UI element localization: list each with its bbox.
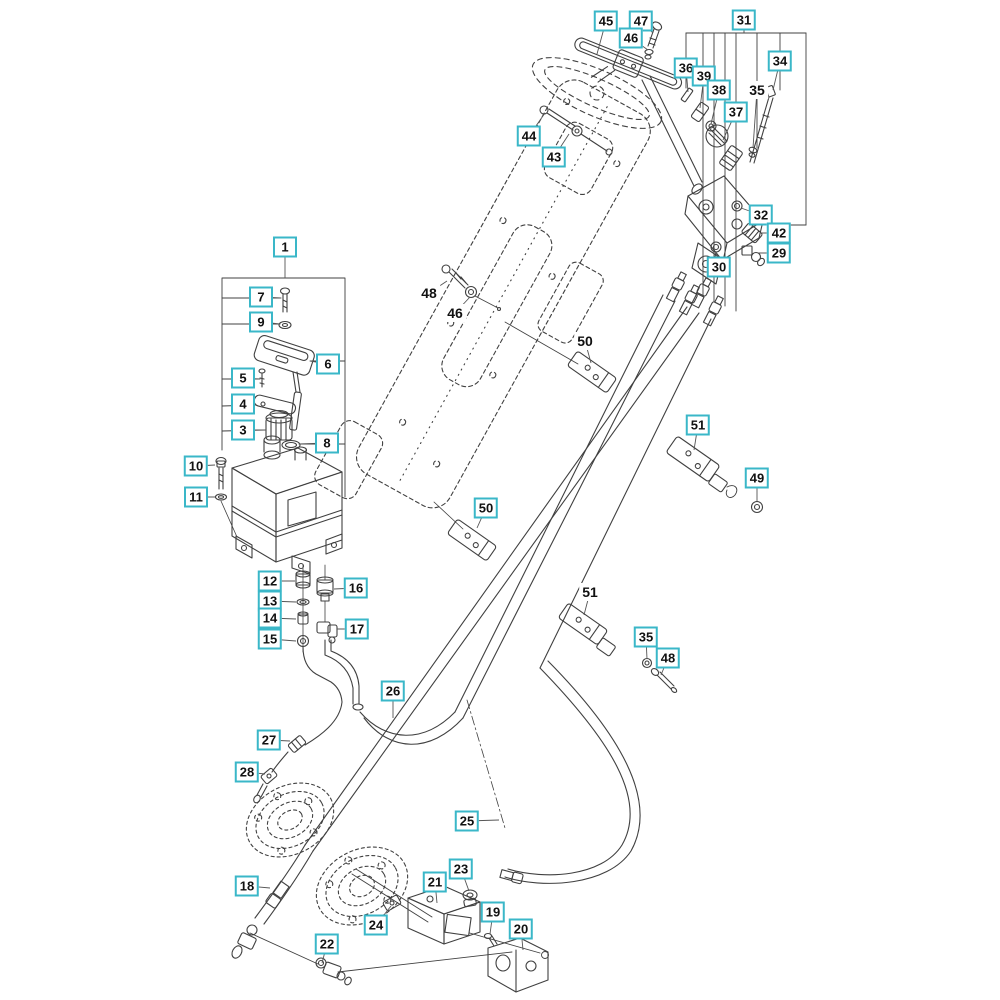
part-callout-11: 11 — [184, 487, 208, 508]
part-callout-44: 44 — [517, 126, 541, 147]
part-callout-26: 26 — [381, 681, 405, 702]
part-callout-25: 25 — [455, 811, 479, 832]
part-callout-5: 5 — [231, 368, 255, 389]
part-callout-49: 49 — [745, 468, 769, 489]
part-callout-45: 45 — [594, 11, 618, 32]
part-callout-42: 42 — [767, 223, 791, 244]
part-callout-6: 6 — [316, 354, 340, 375]
part-callout-12: 12 — [258, 571, 282, 592]
part-callout-4: 4 — [231, 394, 255, 415]
part-callout-16: 16 — [344, 578, 368, 599]
part-callout-18: 18 — [235, 876, 259, 897]
part-callout-50: 50 — [574, 332, 596, 350]
part-callout-37: 37 — [724, 102, 748, 123]
part-callout-3: 3 — [231, 420, 255, 441]
part-callout-30: 30 — [707, 257, 731, 278]
part-callout-50: 50 — [474, 498, 498, 519]
part-callout-10: 10 — [184, 456, 208, 477]
part-callout-43: 43 — [542, 147, 566, 168]
part-callout-29: 29 — [767, 243, 791, 264]
part-callout-21: 21 — [423, 872, 447, 893]
part-callout-1: 1 — [273, 237, 297, 258]
part-callout-35: 35 — [634, 627, 658, 648]
part-callout-46: 46 — [444, 304, 466, 322]
part-callout-19: 19 — [481, 902, 505, 923]
part-callout-24: 24 — [364, 915, 388, 936]
part-callout-28: 28 — [235, 762, 259, 783]
part-callout-48: 48 — [656, 648, 680, 669]
part-callout-35: 35 — [746, 81, 768, 99]
part-callout-27: 27 — [257, 730, 281, 751]
part-callout-51: 51 — [579, 583, 601, 601]
part-callout-14: 14 — [258, 608, 282, 629]
part-callout-31: 31 — [732, 10, 756, 31]
part-callout-15: 15 — [258, 629, 282, 650]
parts-diagram-page: 4547463136393834353744433242293017948466… — [0, 0, 1000, 1000]
part-callout-23: 23 — [449, 859, 473, 880]
part-callout-20: 20 — [509, 919, 533, 940]
part-callout-48: 48 — [418, 284, 440, 302]
part-callout-38: 38 — [707, 80, 731, 101]
callout-layer: 4547463136393834353744433242293017948466… — [0, 0, 1000, 1000]
part-callout-7: 7 — [249, 287, 273, 308]
part-callout-9: 9 — [249, 312, 273, 333]
part-callout-17: 17 — [345, 619, 369, 640]
part-callout-22: 22 — [315, 934, 339, 955]
part-callout-51: 51 — [686, 415, 710, 436]
part-callout-46: 46 — [619, 28, 643, 49]
part-callout-8: 8 — [315, 433, 339, 454]
part-callout-34: 34 — [768, 51, 792, 72]
